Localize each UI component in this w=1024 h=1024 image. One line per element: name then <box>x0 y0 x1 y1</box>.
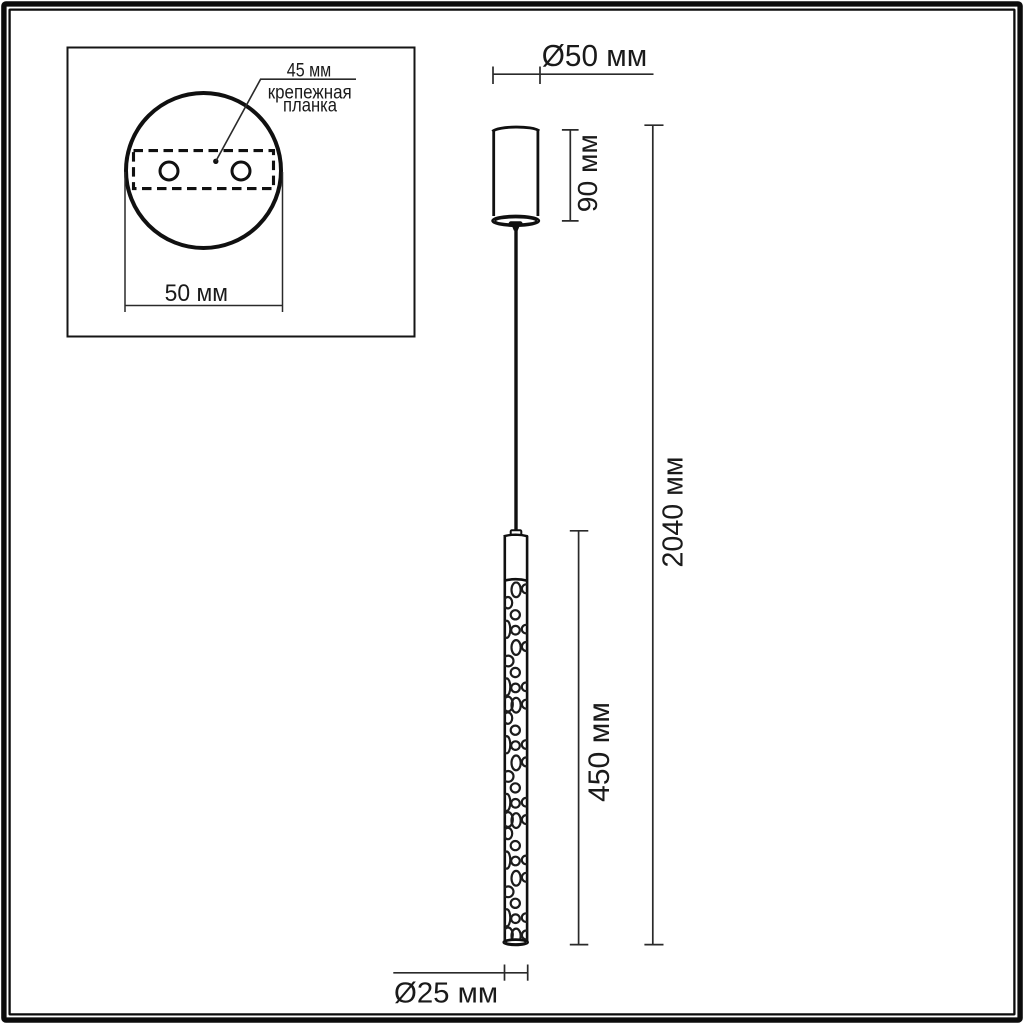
svg-text:2040 мм: 2040 мм <box>657 457 689 568</box>
svg-text:90 мм: 90 мм <box>572 134 603 212</box>
svg-text:Ø25 мм: Ø25 мм <box>394 978 498 1010</box>
svg-text:Ø50 мм: Ø50 мм <box>542 39 648 73</box>
svg-text:планка: планка <box>283 96 337 117</box>
svg-text:45 мм: 45 мм <box>287 60 332 81</box>
svg-text:50 мм: 50 мм <box>165 280 228 307</box>
svg-text:450 мм: 450 мм <box>583 702 616 802</box>
